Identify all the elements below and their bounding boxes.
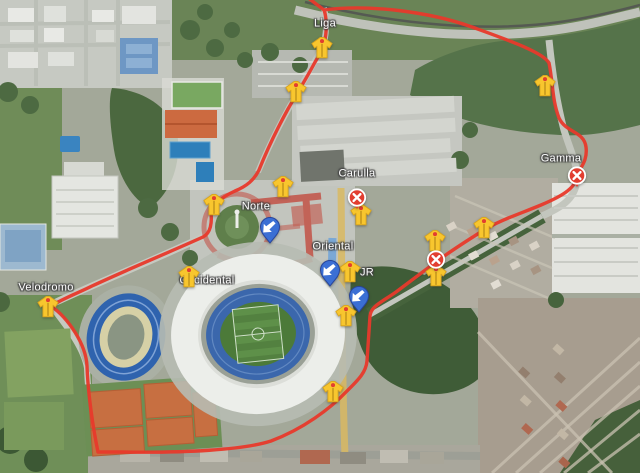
arrow-southwest-icon	[259, 216, 281, 244]
place-label[interactable]: Carulla	[339, 169, 376, 180]
place-label[interactable]: Gamma	[541, 154, 582, 165]
staff-vest-marker[interactable]	[283, 81, 309, 105]
vest-icon	[270, 176, 296, 200]
staff-vest-marker[interactable]	[35, 296, 61, 320]
place-label[interactable]: Norte	[242, 202, 270, 213]
vest-icon	[309, 37, 335, 61]
vest-icon	[320, 381, 346, 405]
vest-icon	[471, 217, 497, 241]
staff-vest-marker[interactable]	[309, 37, 335, 61]
x-icon	[346, 187, 368, 211]
direction-arrow-marker[interactable]	[259, 216, 281, 244]
staff-vest-marker[interactable]	[176, 266, 202, 290]
map-canvas[interactable]: LigaCarullaGammaNorteOrientalJROccidenta…	[0, 0, 640, 473]
road-closed-marker[interactable]	[425, 249, 447, 273]
place-label[interactable]: Velodromo	[18, 283, 73, 294]
direction-arrow-marker[interactable]	[319, 259, 341, 287]
vest-icon	[201, 194, 227, 218]
marker-layer	[0, 0, 640, 473]
staff-vest-marker[interactable]	[471, 217, 497, 241]
staff-vest-marker[interactable]	[201, 194, 227, 218]
staff-vest-marker[interactable]	[532, 75, 558, 99]
x-icon	[566, 165, 588, 189]
place-label[interactable]: Liga	[314, 19, 336, 30]
place-label[interactable]: Oriental	[313, 242, 354, 253]
staff-vest-marker[interactable]	[270, 176, 296, 200]
road-closed-marker[interactable]	[346, 187, 368, 211]
direction-arrow-marker[interactable]	[348, 285, 370, 313]
arrow-southwest-icon	[348, 285, 370, 313]
vest-icon	[532, 75, 558, 99]
x-icon	[425, 249, 447, 273]
arrow-southwest-icon	[319, 259, 341, 287]
road-closed-marker[interactable]	[566, 165, 588, 189]
vest-icon	[176, 266, 202, 290]
vest-icon	[35, 296, 61, 320]
staff-vest-marker[interactable]	[320, 381, 346, 405]
vest-icon	[283, 81, 309, 105]
